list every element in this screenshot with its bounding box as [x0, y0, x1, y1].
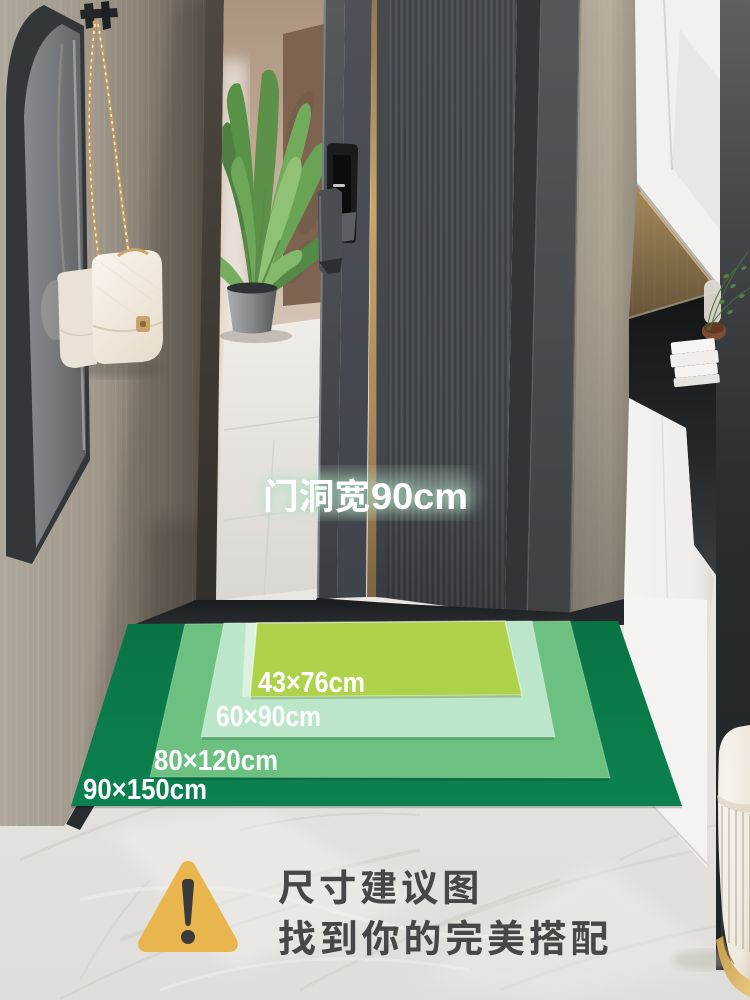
svg-text:43×76cm: 43×76cm [258, 667, 365, 699]
svg-text:90cm: 90cm [371, 476, 468, 517]
svg-text:60×90cm: 60×90cm [216, 701, 321, 733]
svg-text:80×120cm: 80×120cm [154, 745, 278, 777]
svg-text:90×150cm: 90×150cm [83, 774, 207, 806]
